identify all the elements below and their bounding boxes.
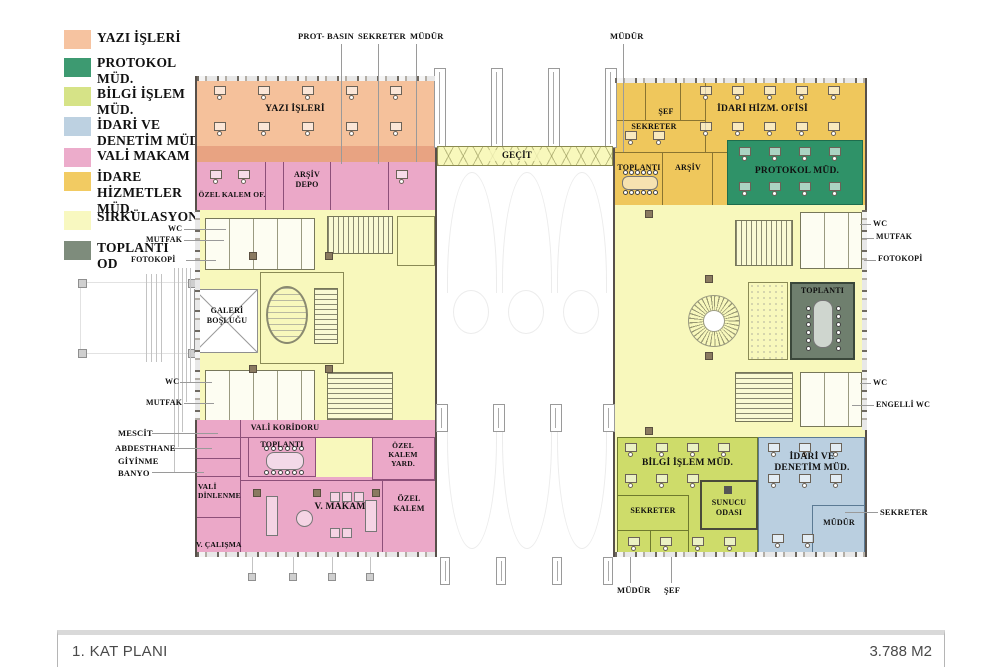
chair-icon	[647, 190, 652, 195]
desk-icon	[238, 170, 250, 179]
yazi-isleri-corridor	[197, 146, 435, 162]
entrance-step-line	[146, 274, 147, 362]
callout-fotokopi-mid: FOTOKOPİ	[131, 255, 176, 264]
callout-mudur-bottom: MÜDÜR	[617, 585, 651, 595]
chair-icon	[806, 322, 811, 327]
desk-icon	[828, 86, 840, 95]
callout-mutfak-right: MUTFAK	[876, 232, 912, 241]
desk-icon	[687, 443, 699, 452]
terrace-line	[252, 557, 253, 573]
wall	[197, 517, 240, 518]
leader-line	[186, 260, 216, 261]
terrace-line	[370, 557, 371, 573]
callout-mescit: MESCİT	[118, 428, 153, 438]
conference-table	[266, 452, 304, 470]
desk-icon	[692, 537, 704, 546]
callout-sef-bottom: ŞEF	[664, 585, 680, 595]
plan-area: 3.788 M2	[869, 643, 932, 660]
leader-line	[174, 268, 175, 472]
leader-line	[378, 44, 379, 164]
desk-icon	[732, 122, 744, 131]
desk-icon	[764, 86, 776, 95]
wall	[645, 80, 646, 120]
desk-icon	[700, 86, 712, 95]
desk-icon	[653, 131, 665, 140]
callout-fotokopi-right: FOTOKOPİ	[878, 254, 923, 263]
pilaster	[493, 404, 505, 432]
toplanti-gold-label: TOPLANTI	[615, 163, 663, 173]
wc-block	[800, 212, 862, 269]
desk-icon	[390, 122, 402, 131]
callout-wc-right-low: WC	[873, 378, 887, 387]
pilaster	[491, 68, 503, 148]
chair-icon	[278, 470, 283, 475]
desk-icon	[764, 122, 776, 131]
courtyard-arc	[502, 428, 552, 549]
legend-label-bilgi-islem: BİLGİ İŞLEM MÜD.	[97, 86, 185, 118]
leader-line	[852, 405, 874, 406]
terrace-column	[366, 573, 374, 581]
protokol-label: PROTOKOL MÜD.	[747, 166, 847, 177]
stairs	[735, 372, 793, 422]
desk-icon	[796, 122, 808, 131]
desk-icon	[214, 86, 226, 95]
oval-stair	[266, 286, 308, 344]
callout-mudur-top: MÜDÜR	[410, 31, 444, 41]
wall	[812, 505, 813, 555]
desk-icon	[796, 86, 808, 95]
leader-line	[182, 268, 183, 432]
stairs	[314, 288, 338, 344]
furniture	[342, 492, 352, 502]
vali-koridoru-label: VALİ KORİDORU	[240, 423, 330, 433]
desk-icon	[769, 147, 781, 156]
legend-swatch-toplanti-od	[64, 241, 91, 260]
wall	[388, 162, 389, 210]
callout-sekreter-top: SEKRETER	[358, 31, 406, 41]
leader-line	[184, 229, 226, 230]
landing	[748, 282, 788, 360]
wall	[617, 530, 689, 531]
chair-icon	[635, 190, 640, 195]
desk-icon	[799, 147, 811, 156]
chair-icon	[271, 470, 276, 475]
sekreter-lime-label: SEKRETER	[620, 506, 686, 516]
server-icon	[724, 486, 732, 494]
desk-icon	[700, 122, 712, 131]
chair-icon	[264, 470, 269, 475]
porch-column	[78, 279, 87, 288]
pilaster	[440, 557, 450, 585]
desk-icon	[390, 86, 402, 95]
leader-line	[184, 403, 214, 404]
pilaster	[550, 404, 562, 432]
plan-title: 1. KAT PLANI	[72, 643, 168, 660]
wall	[662, 153, 663, 205]
column-icon	[372, 489, 380, 497]
courtyard-arc	[502, 172, 552, 293]
leader-line	[152, 433, 218, 434]
chair-icon	[641, 190, 646, 195]
column-icon	[325, 252, 333, 260]
legend-label-sirkulasyon: SİRKÜLASYON	[97, 209, 198, 225]
arsiv-depo-label: ARŞİV DEPO	[284, 170, 330, 189]
wall	[812, 505, 865, 506]
galeri-label: GALERİ BOŞLUĞU	[196, 306, 258, 325]
vali-dinlenme-label: VALİ DİNLENME	[198, 482, 254, 500]
legend-label-idari-denetim: İDARİ VE DENETİM MÜD.	[97, 117, 203, 149]
callout-abdesthane: ABDESTHANE	[115, 443, 176, 453]
legend-swatch-protokol	[64, 58, 91, 77]
leader-line	[180, 382, 212, 383]
spiral-stair-hole	[703, 310, 725, 332]
sunucu-label: SUNUCU ODASI	[702, 498, 756, 517]
desk-icon	[799, 474, 811, 483]
legend-swatch-bilgi-islem	[64, 87, 91, 106]
circulation-notch	[316, 438, 372, 477]
v-makam-label: V. MAKAM	[300, 502, 380, 513]
leader-line	[416, 44, 417, 162]
window-strip	[197, 552, 435, 557]
desk-icon	[768, 443, 780, 452]
callout-mutfak-low: MUTFAK	[146, 398, 182, 407]
wall	[240, 480, 435, 481]
gecit-label: GEÇİT	[487, 150, 547, 161]
stairs	[327, 372, 393, 420]
chair-icon	[806, 338, 811, 343]
desk-icon	[799, 443, 811, 452]
pilaster	[548, 68, 560, 148]
window-strip	[615, 552, 865, 557]
leader-line	[190, 268, 191, 382]
wall	[197, 476, 240, 477]
desk-icon	[724, 537, 736, 546]
desk-icon	[829, 147, 841, 156]
desk-icon	[687, 474, 699, 483]
arsiv-gold-label: ARŞİV	[666, 163, 710, 173]
chair-icon	[806, 346, 811, 351]
desk-icon	[772, 534, 784, 543]
chair-icon	[653, 190, 658, 195]
legend-label-vali-makam: VALİ MAKAM	[97, 148, 190, 164]
courtyard-arc	[563, 290, 599, 334]
wall	[712, 153, 713, 205]
terrace-line	[293, 557, 294, 573]
desk-icon	[828, 122, 840, 131]
desk-icon	[346, 122, 358, 131]
terrace-line	[332, 557, 333, 573]
desk-icon	[802, 534, 814, 543]
leader-line	[864, 260, 876, 261]
column-icon	[325, 365, 333, 373]
chair-icon	[836, 330, 841, 335]
bilgi-islem-label: BİLGİ İŞLEM MÜD.	[625, 458, 750, 469]
toplanti-left-label: TOPLANTI	[252, 440, 312, 450]
pilaster	[552, 557, 562, 585]
furniture	[354, 492, 364, 502]
legend-label-yazi-isleri: YAZI İŞLERİ	[97, 30, 181, 46]
chair-icon	[806, 306, 811, 311]
chair-icon	[836, 314, 841, 319]
desk-icon	[739, 182, 751, 191]
desk-icon	[830, 474, 842, 483]
floor-plan-page: YAZI İŞLERİ PROTOKOL MÜD. BİLGİ İŞLEM MÜ…	[0, 0, 1000, 667]
entrance-step-line	[161, 274, 162, 362]
desk-icon	[302, 86, 314, 95]
ozel-kalem-of-label: ÖZEL KALEM OF.	[197, 190, 267, 199]
courtyard-arc	[508, 290, 544, 334]
column-icon	[645, 427, 653, 435]
desk-icon	[625, 474, 637, 483]
terrace-column	[289, 573, 297, 581]
entrance-step-line	[151, 274, 152, 362]
callout-wc-right-top: WC	[873, 219, 887, 228]
window-strip	[197, 76, 435, 81]
chair-icon	[299, 470, 304, 475]
callout-mudur-top-right: MÜDÜR	[610, 31, 644, 41]
courtyard-arc	[453, 290, 489, 334]
desk-icon	[769, 182, 781, 191]
desk-icon	[830, 443, 842, 452]
porch-column	[78, 349, 87, 358]
service-room	[397, 216, 435, 266]
pilaster	[603, 404, 615, 432]
callout-wc-low: WC	[165, 377, 179, 386]
idari-denetim-label: İDARİ VE DENETİM MÜD.	[762, 452, 862, 475]
terrace-column	[248, 573, 256, 581]
desk-icon	[625, 131, 637, 140]
wc-block	[205, 370, 315, 422]
chair-icon	[806, 330, 811, 335]
callout-wc-mid: WC	[168, 224, 182, 233]
wall	[330, 162, 331, 210]
leader-line	[184, 240, 224, 241]
column-icon	[249, 252, 257, 260]
desk-icon	[660, 537, 672, 546]
courtyard-arc	[447, 172, 497, 293]
desk-icon	[656, 474, 668, 483]
leader-line	[671, 557, 672, 583]
mudur-blue-label: MÜDÜR	[814, 518, 864, 528]
wall	[615, 152, 727, 153]
pilaster	[603, 557, 613, 585]
legend-swatch-vali-makam	[64, 148, 91, 167]
furniture	[330, 528, 340, 538]
callout-sekreter-right: SEKRETER	[880, 507, 928, 517]
legend-swatch-sirkulasyon	[64, 211, 91, 230]
ozel-kalem-yard-label: ÖZEL KALEM YARD.	[374, 441, 432, 468]
conference-table	[622, 176, 658, 190]
leader-line	[152, 472, 204, 473]
callout-engelli-wc: ENGELLİ WC	[876, 400, 930, 409]
idari-hizm-ofisi-label: İDARİ HİZM. OFİSİ	[690, 104, 835, 115]
column-icon	[645, 210, 653, 218]
stairs	[735, 220, 793, 266]
chair-icon	[836, 322, 841, 327]
window-strip	[615, 78, 865, 83]
pilaster	[436, 404, 448, 432]
desk-icon	[656, 443, 668, 452]
leader-line	[845, 512, 878, 513]
wall	[265, 162, 266, 210]
desk-icon	[302, 122, 314, 131]
chair-icon	[806, 314, 811, 319]
legend-swatch-idare-hizmetler	[64, 172, 91, 191]
conference-table	[813, 300, 833, 348]
callout-mutfak-mid: MUTFAK	[146, 235, 182, 244]
column-icon	[249, 365, 257, 373]
wall	[382, 480, 383, 557]
leader-line	[178, 268, 179, 447]
desk-icon	[628, 537, 640, 546]
wall	[197, 458, 240, 459]
window-strip	[862, 210, 867, 430]
chair-icon	[836, 346, 841, 351]
desk-icon	[799, 182, 811, 191]
desk-icon	[718, 443, 730, 452]
entrance-step-line	[156, 274, 157, 362]
leader-line	[172, 448, 212, 449]
callout-giyinme: GİYİNME	[118, 456, 159, 466]
desk-icon	[739, 147, 751, 156]
desk-icon	[346, 86, 358, 95]
sef-label: ŞEF	[648, 107, 684, 117]
courtyard-arc	[557, 172, 607, 293]
leader-line	[860, 383, 871, 384]
leader-line	[630, 557, 631, 583]
legend-swatch-yazi-isleri	[64, 30, 91, 49]
ozel-kalem-label: ÖZEL KALEM	[386, 494, 432, 513]
legend-swatch-idari-denetim	[64, 117, 91, 136]
wc-block	[800, 372, 862, 427]
desk-icon	[258, 122, 270, 131]
pilaster	[434, 68, 446, 148]
callout-banyo: BANYO	[118, 468, 150, 478]
callout-prot-basin: PROT- BASIN	[298, 31, 354, 41]
desk-icon	[258, 86, 270, 95]
leader-line	[860, 224, 871, 225]
column-icon	[253, 489, 261, 497]
leader-line	[862, 238, 874, 239]
chair-icon	[836, 306, 841, 311]
chair-icon	[292, 470, 297, 475]
legend-label-protokol: PROTOKOL MÜD.	[97, 55, 176, 87]
courtyard-arc	[447, 428, 497, 549]
yazi-isleri-label: YAZI İŞLERİ	[240, 104, 350, 115]
toplanti-dark-label: TOPLANTI	[792, 286, 853, 296]
furniture	[342, 528, 352, 538]
chair-icon	[623, 190, 628, 195]
wall	[617, 495, 689, 496]
desk-icon	[829, 182, 841, 191]
chair-icon	[285, 470, 290, 475]
terrace-column	[328, 573, 336, 581]
leader-line	[623, 44, 624, 152]
courtyard-arc	[557, 428, 607, 549]
wc-block	[205, 218, 315, 270]
desk-icon	[214, 122, 226, 131]
wall	[615, 120, 705, 121]
wall	[688, 495, 689, 555]
pilaster	[496, 557, 506, 585]
footer-bar: 1. KAT PLANI 3.788 M2	[57, 630, 945, 667]
desk-icon	[210, 170, 222, 179]
sekreter-gold-label: SEKRETER	[618, 122, 690, 132]
desk-icon	[768, 474, 780, 483]
stairs	[327, 216, 393, 254]
desk-icon	[396, 170, 408, 179]
v-calisma-label: V. ÇALIŞMA	[196, 540, 252, 549]
chair-icon	[629, 190, 634, 195]
desk-icon	[625, 443, 637, 452]
desk-icon	[732, 86, 744, 95]
column-icon	[705, 352, 713, 360]
column-icon	[313, 489, 321, 497]
column-icon	[705, 275, 713, 283]
furniture	[330, 492, 340, 502]
chair-icon	[836, 338, 841, 343]
furniture	[266, 496, 278, 536]
